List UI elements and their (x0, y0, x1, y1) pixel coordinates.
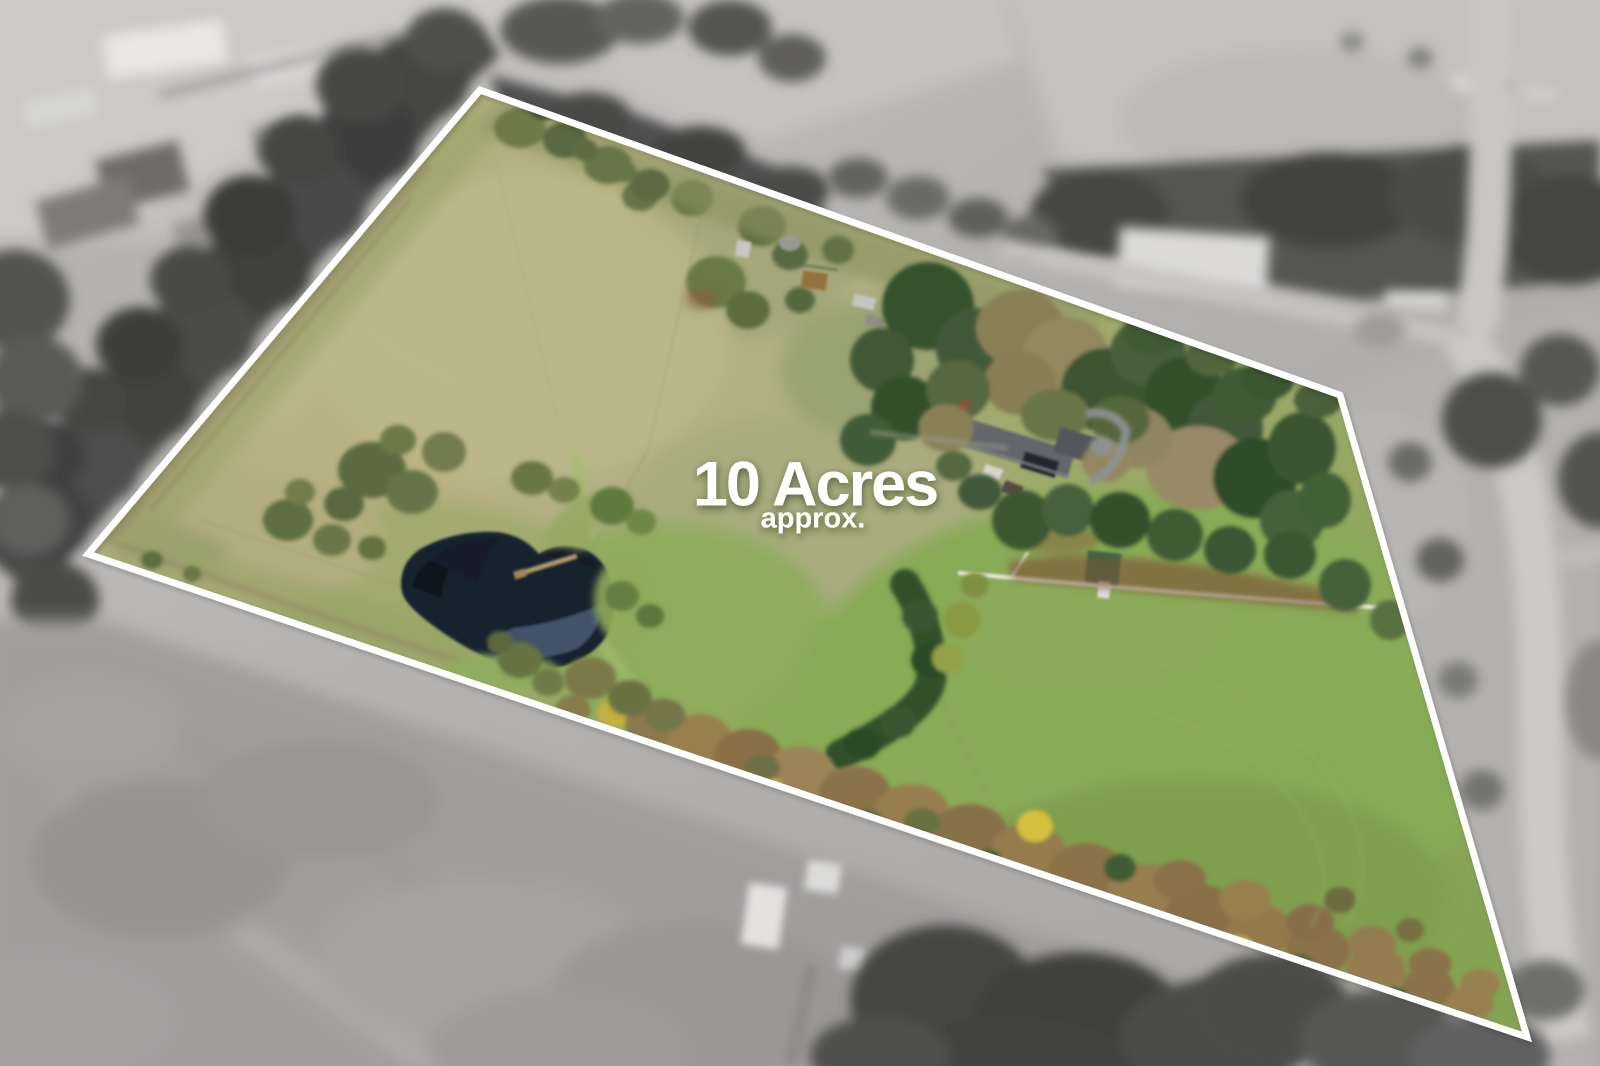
svg-text:approx.: approx. (761, 503, 866, 535)
